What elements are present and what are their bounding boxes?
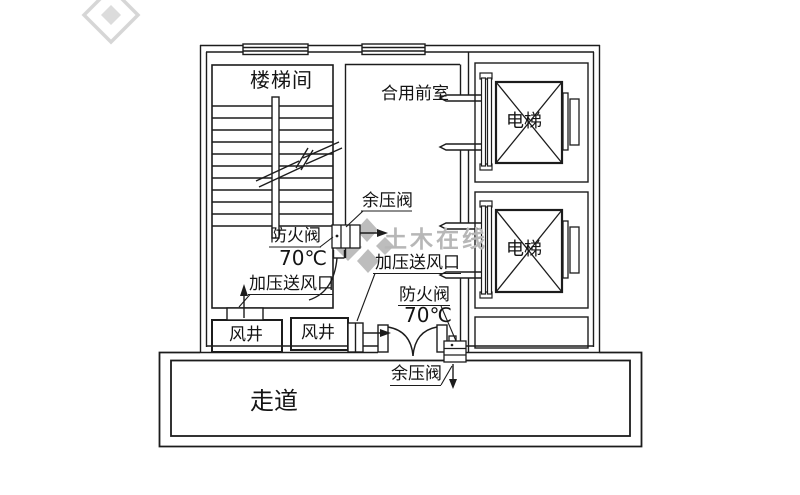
elevator-1-label: 电梯 — [506, 113, 542, 131]
fire-damper-top-temp: 70℃ — [279, 248, 327, 268]
stair-handrail — [272, 97, 279, 238]
watermark-fragment-topleft — [84, 0, 138, 42]
fire-damper-bottom-temp: 70℃ — [404, 305, 452, 325]
fire-damper-bottom-label: 防火阀 — [399, 287, 450, 304]
relief-valve-top-label: 余压阀 — [362, 193, 413, 210]
corridor-label: 走道 — [250, 389, 298, 413]
elevator-counterweights — [563, 93, 579, 278]
fire-damper-valve-top — [332, 225, 360, 248]
air-shaft-right-label: 风井 — [301, 325, 335, 342]
elevator-doors — [480, 73, 492, 298]
relief-valve-bottom-label: 余压阀 — [391, 366, 442, 383]
pressure-outlet-left-label: 加压送风口 — [249, 276, 334, 293]
watermark-text: 土木在线 — [384, 229, 488, 252]
air-shaft-left-label: 风井 — [229, 327, 263, 344]
front-room-label: 合用前室 — [381, 86, 449, 103]
fire-damper-top-label: 防火阀 — [270, 228, 321, 245]
floor-plan-page: 楼梯间 合用前室 电梯 电梯 风井 风井 走道 余压阀 防火阀 70℃ 加压送风… — [0, 0, 800, 495]
elevator-2-label: 电梯 — [506, 241, 542, 259]
stairwell-label: 楼梯间 — [250, 70, 313, 90]
pressure-outlet-right-label: 加压送风口 — [375, 255, 460, 272]
entrance-double-door — [378, 325, 447, 356]
stair-break-line — [256, 142, 342, 187]
